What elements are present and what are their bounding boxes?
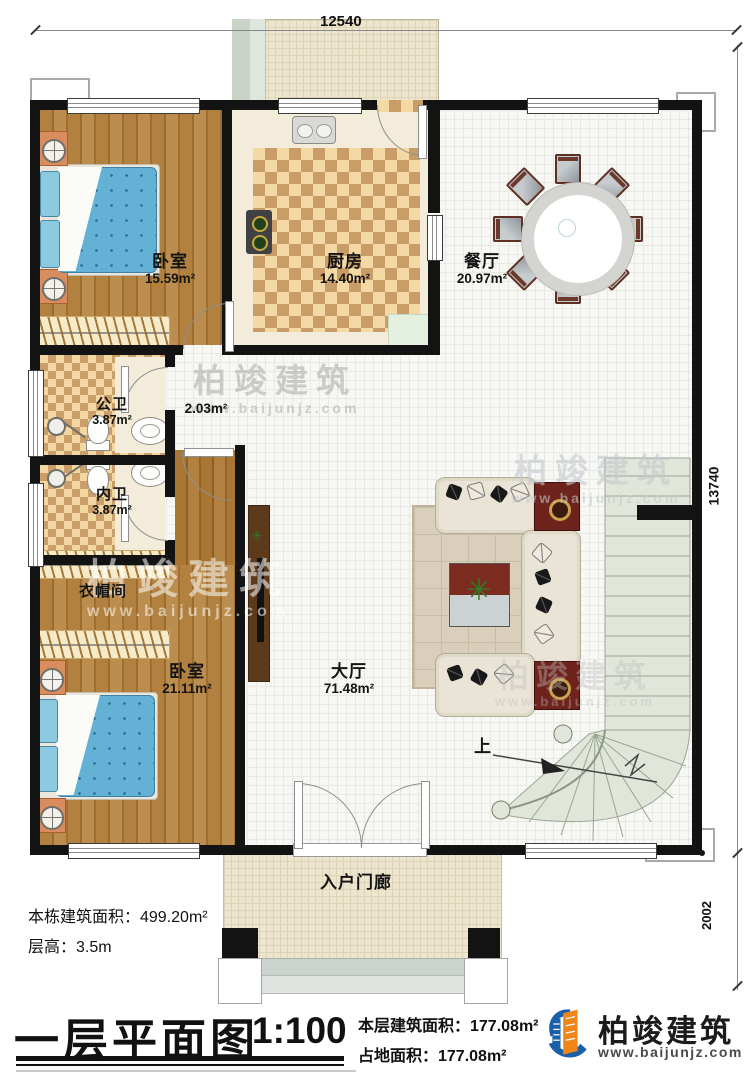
wall bbox=[692, 100, 702, 855]
area-label-hallway: 2.03m² bbox=[176, 402, 236, 417]
wall bbox=[235, 445, 245, 855]
window bbox=[28, 483, 44, 567]
plant-icon: ✳ bbox=[248, 528, 266, 544]
note-total-area: 本栋建筑面积：499.20m² bbox=[28, 903, 208, 927]
sink-bowl bbox=[316, 124, 332, 138]
note-floor-height: 层高：3.5m bbox=[28, 933, 112, 957]
room-label-bedroom1: 卧室 15.59m² bbox=[120, 253, 220, 287]
kitchen-sink bbox=[292, 116, 336, 144]
stairs-up-label: 上 bbox=[470, 738, 496, 757]
porch-column bbox=[222, 928, 258, 958]
room-label-kitchen: 厨房 14.40m² bbox=[295, 253, 395, 287]
nightstand bbox=[36, 269, 68, 304]
room-label-dining: 餐厅 20.97m² bbox=[432, 253, 532, 287]
bed-pillow bbox=[40, 171, 60, 217]
dimension-line-right bbox=[737, 45, 738, 857]
room-label-public-bath: 公卫 3.87m² bbox=[78, 397, 146, 427]
porch-column bbox=[468, 928, 500, 958]
porch-step bbox=[257, 975, 472, 994]
lamp-icon bbox=[42, 139, 66, 163]
terrace-strip bbox=[232, 19, 250, 100]
door-leaf bbox=[421, 781, 430, 849]
wall bbox=[165, 355, 175, 367]
wall bbox=[30, 345, 183, 355]
wall bbox=[360, 100, 377, 110]
room-label-porch: 入户门廊 bbox=[308, 874, 404, 893]
wall bbox=[637, 505, 692, 520]
kitchen-tile bbox=[253, 148, 420, 332]
wall bbox=[425, 845, 525, 855]
dining-table bbox=[522, 183, 634, 295]
room-label-cloakroom: 衣帽间 bbox=[66, 584, 140, 601]
column-base bbox=[218, 958, 262, 1004]
wall bbox=[428, 110, 440, 213]
wall bbox=[30, 455, 175, 465]
wall bbox=[423, 100, 527, 110]
floor-area-note: 本层建筑面积：177.08m² bbox=[358, 1012, 539, 1036]
brand-logo-icon bbox=[538, 1002, 592, 1064]
door-leaf bbox=[225, 301, 234, 352]
tv bbox=[257, 558, 264, 642]
window bbox=[527, 98, 659, 114]
bed-pillow bbox=[40, 220, 60, 268]
title-underline-thin bbox=[16, 1064, 344, 1066]
window bbox=[525, 843, 657, 859]
brand-site: www.baijunjz.com bbox=[598, 1044, 743, 1060]
wall bbox=[225, 345, 440, 355]
room-label-private-bath: 内卫 3.87m² bbox=[78, 487, 146, 517]
window bbox=[278, 98, 362, 114]
dining-chair bbox=[555, 154, 581, 184]
dimension-right-value: 13740 bbox=[705, 467, 721, 506]
shower-head-icon bbox=[47, 417, 66, 436]
shower-head-icon bbox=[47, 469, 66, 488]
wall bbox=[30, 565, 40, 855]
room-label-hall: 大厅 71.48m² bbox=[299, 663, 399, 697]
table-center bbox=[558, 219, 576, 237]
stove bbox=[246, 210, 272, 254]
room-label-bedroom2: 卧室 21.11m² bbox=[137, 663, 237, 697]
sheet-scale: 1:100 bbox=[252, 1010, 347, 1052]
wall bbox=[198, 845, 293, 855]
lamp-icon bbox=[42, 277, 66, 301]
terrace-strip bbox=[250, 19, 266, 100]
sink-bowl bbox=[297, 124, 313, 138]
window bbox=[28, 370, 44, 457]
entry-porch bbox=[223, 853, 502, 960]
title-underline-gray bbox=[16, 1070, 356, 1072]
column-base bbox=[464, 958, 508, 1004]
window bbox=[68, 843, 200, 859]
wall bbox=[30, 555, 175, 565]
bed-pillow bbox=[38, 699, 58, 743]
door-leaf bbox=[418, 105, 427, 159]
nightstand bbox=[36, 131, 68, 166]
dining-chair bbox=[493, 216, 523, 242]
dimension-right-lower-value: 2002 bbox=[699, 901, 714, 930]
title-underline bbox=[16, 1056, 344, 1061]
dimension-top-value: 12540 bbox=[320, 13, 362, 30]
burner-icon bbox=[252, 235, 268, 251]
window bbox=[67, 98, 200, 114]
burner-icon bbox=[252, 216, 268, 232]
lamp-icon bbox=[40, 668, 64, 692]
wall bbox=[198, 100, 278, 110]
dimension-line-top bbox=[35, 30, 737, 31]
sink-basin bbox=[140, 466, 160, 480]
dimension-line-right-lower bbox=[737, 857, 738, 990]
wall bbox=[165, 410, 175, 497]
wall bbox=[30, 100, 40, 370]
door-leaf bbox=[184, 448, 234, 457]
footprint-note: 占地面积：177.08m² bbox=[358, 1042, 507, 1066]
bed-pillow bbox=[38, 746, 58, 792]
floor-plan-page: 12540 13740 2002 bbox=[0, 0, 750, 1076]
cloakroom-rack bbox=[36, 630, 170, 659]
door-leaf bbox=[294, 781, 303, 849]
lamp-icon bbox=[40, 806, 64, 830]
